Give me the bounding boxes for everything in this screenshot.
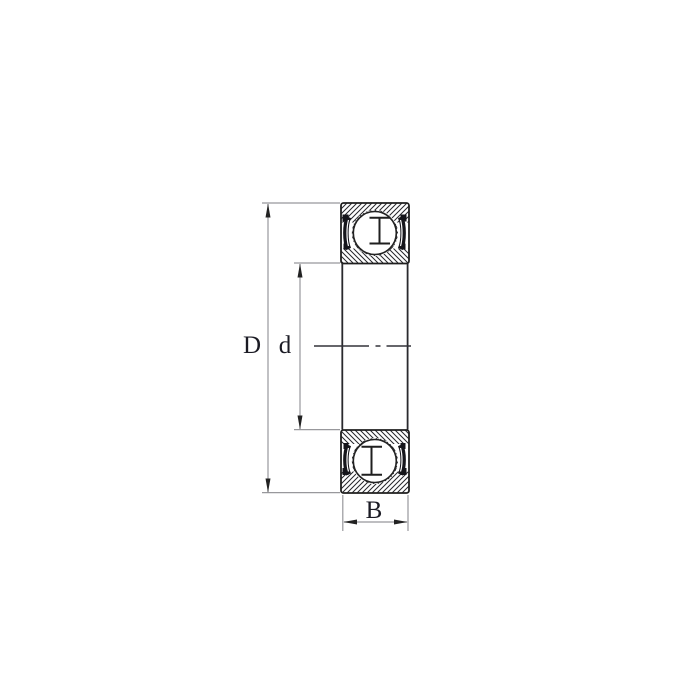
bearing-top-section [341, 203, 409, 264]
dimension-D-label: D [243, 332, 261, 359]
dimension-B-arrow-right-icon [394, 520, 408, 525]
dimension-B-arrow-left-icon [343, 520, 357, 525]
drawing-canvas: D d B [0, 0, 700, 700]
dimension-d-arrow-up-icon [298, 264, 303, 278]
dimension-B: B [343, 495, 408, 531]
dimension-D-arrow-down-icon [266, 479, 271, 493]
bearing-diagram: D d B [0, 0, 700, 700]
dimension-D: D [243, 203, 340, 493]
dimension-D-extension-lines [262, 203, 340, 493]
dimension-B-label: B [366, 497, 383, 524]
dimension-D-arrow-up-icon [266, 204, 271, 218]
bearing-bottom-section [341, 430, 409, 493]
dimension-d-arrow-down-icon [298, 416, 303, 430]
dimension-d-label: d [279, 332, 292, 359]
